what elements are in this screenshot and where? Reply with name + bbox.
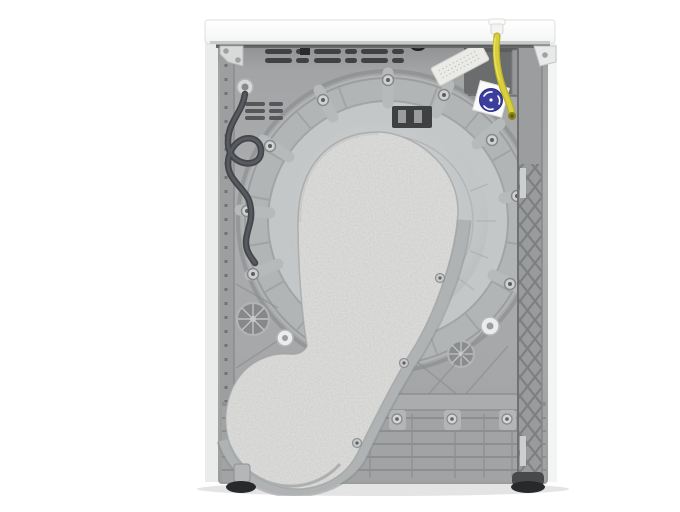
product-photo: Rear view product photo of a white frees… (40, 16, 680, 496)
lattice-rail (518, 46, 542, 478)
rail-clip-top (520, 168, 526, 198)
side-vent-slots (245, 102, 283, 120)
dryer-rear-illustration (40, 16, 680, 496)
disc-bracket (234, 464, 250, 482)
foot-right (511, 481, 545, 493)
foot-left (226, 481, 256, 493)
clip-cutout (392, 106, 432, 128)
spoked-wheel-left (237, 303, 269, 335)
spoked-wheel-right (448, 341, 474, 367)
rail-clip-bottom (520, 436, 526, 466)
